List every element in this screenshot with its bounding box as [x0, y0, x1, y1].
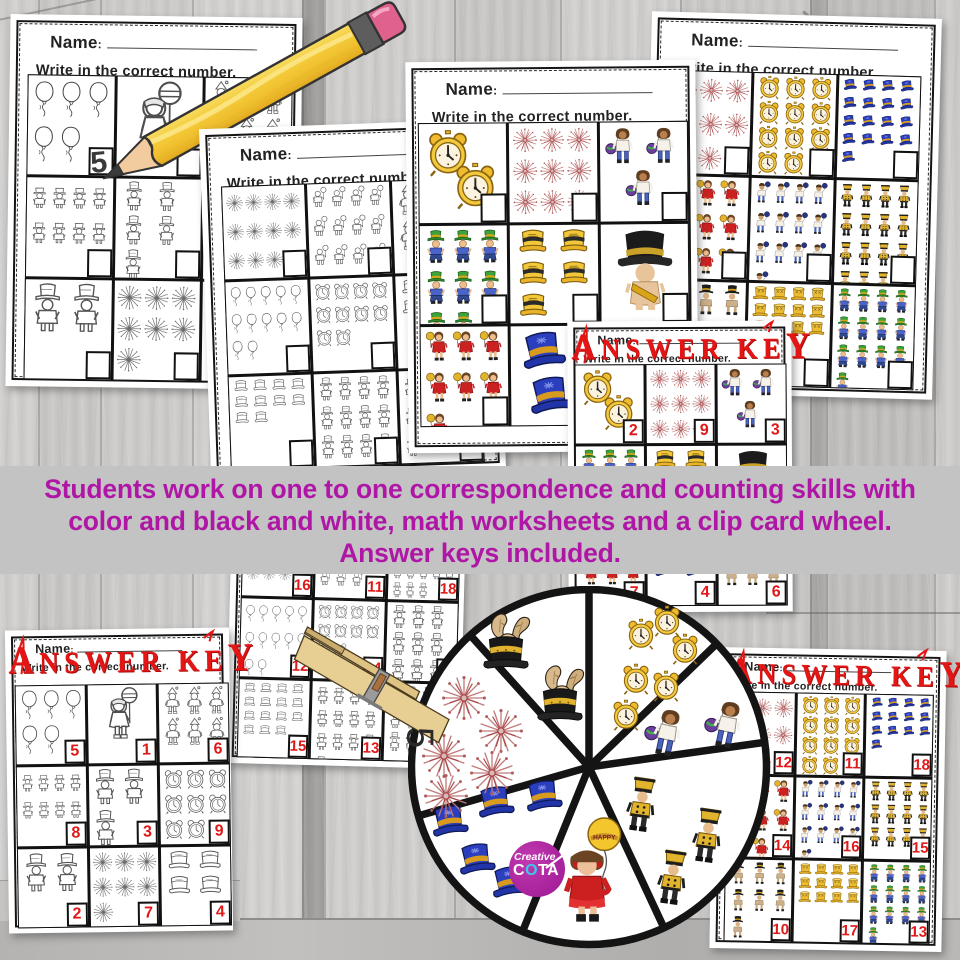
- svg-text:HAPPY: HAPPY: [593, 835, 616, 842]
- svg-text:5: 5: [398, 727, 440, 749]
